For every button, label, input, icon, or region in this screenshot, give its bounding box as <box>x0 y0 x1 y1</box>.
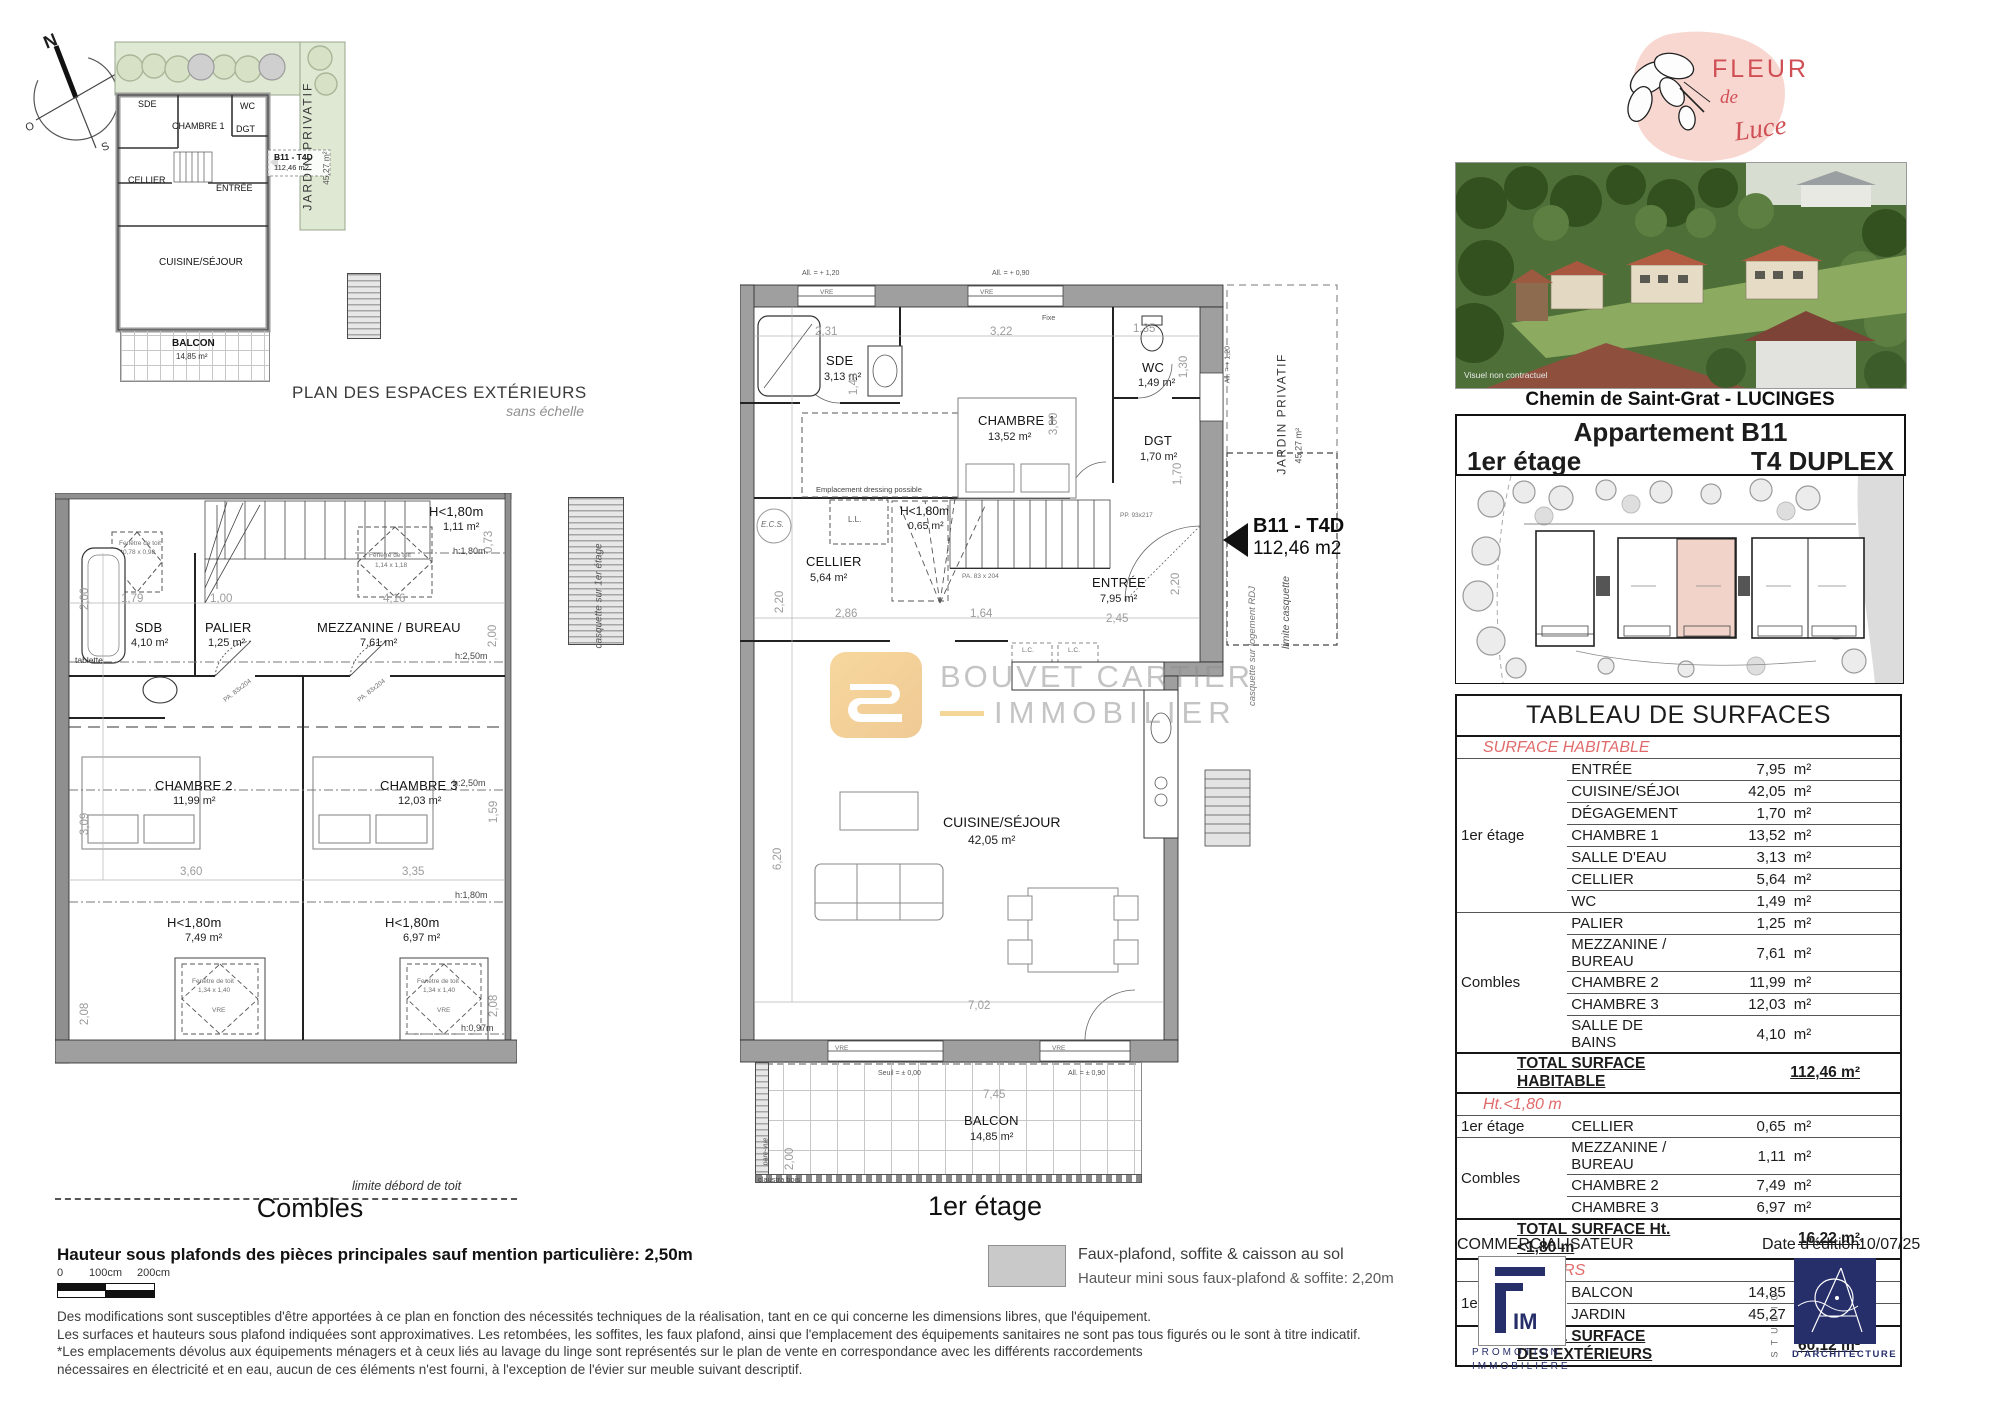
skylight-label: Fenêtre de toit <box>369 553 411 560</box>
combles-chambre2: CHAMBRE 2 <box>155 779 233 793</box>
floor-cell: 1er étage <box>1456 1116 1567 1138</box>
casquette-1er-etage: casquette sur 1er étage <box>568 497 624 645</box>
logo-word-fleur: FLEUR <box>1712 56 1809 82</box>
dim: 2,45 <box>1106 613 1128 625</box>
vre-label: VRE <box>437 1008 450 1015</box>
fixe-window-label: Fixe <box>1042 315 1055 322</box>
seuil-label: Seuil = ± 0,00 <box>878 1070 921 1077</box>
ff-wc: WC <box>1142 361 1164 375</box>
ff-jardin-area: 45,27 m² <box>1295 428 1304 464</box>
dim: 3,00 <box>1048 413 1060 435</box>
mini-exterior-stairs <box>347 273 381 339</box>
combles-chambre2-area: 11,99 m² <box>173 796 216 808</box>
skylight-label: Fenêtre de toit <box>192 979 234 986</box>
ext-jardin-label: JARDIN PRIVATIF <box>301 82 314 211</box>
dim: 2,00 <box>487 625 499 647</box>
logo-word-de: de <box>1720 88 1738 108</box>
ff-cellier: CELLIER <box>806 555 862 569</box>
ff-h180: H<1,80m <box>900 505 949 518</box>
combles-h180-right-area: 6,97 m² <box>403 933 440 945</box>
dim: 2,20 <box>774 591 786 613</box>
commercialisateur-label: COMMERCIALISATEUR <box>1457 1237 1634 1254</box>
table-row: Combles MEZZANINE / BUREAU1,11m² <box>1456 1138 1901 1175</box>
combles-sdb-area: 4,10 m² <box>131 638 168 650</box>
watermark-line1: BOUVET CARTIER <box>940 659 1253 695</box>
table-row: Combles PALIER1,25m² <box>1456 913 1901 935</box>
dim: 1,70 <box>1172 463 1184 485</box>
dim: 2,08 <box>488 995 500 1017</box>
dim: 3,22 <box>990 326 1012 338</box>
balcony-edge <box>755 1174 1142 1183</box>
agency-watermark: BOUVET CARTIER IMMOBILIER <box>828 650 1253 740</box>
scale-bar: 0 100cm 200cm <box>57 1268 167 1298</box>
photo-caption: Visuel non contractuel <box>1464 371 1547 380</box>
project-address: Chemin de Saint-Grat - LUCINGES <box>1455 390 1905 410</box>
combles-h180-left: H<1,80m <box>167 916 222 930</box>
combles-h180-top-area: 1,11 m² <box>443 522 479 534</box>
studio-logo-icon <box>1794 1258 1876 1344</box>
ff-balcon-area: 14,85 m² <box>970 1132 1013 1144</box>
section-surface-habitable: SURFACE HABITABLE <box>1456 736 1901 759</box>
combles-palier-area: 1,25 m² <box>208 638 245 650</box>
studio-caption: D'ARCHITECTURE <box>1792 1350 1897 1360</box>
claustra-label: claustra bois <box>758 1176 800 1184</box>
plan-sheet: { "compass": {"n":"N","e":"E","s":"S","o… <box>0 0 2000 1413</box>
allege-label: All. = + 1,20 <box>802 270 839 277</box>
ll-label: L.L. <box>848 516 861 524</box>
ext-room-cellier: CELLIER <box>128 176 166 185</box>
watermark-line2: IMMOBILIER <box>994 695 1237 731</box>
dim: 2,00 <box>79 588 91 610</box>
skylight-label: Fenêtre de toit <box>417 979 459 986</box>
disclaimer-line: Les surfaces et hauteurs sous plafond in… <box>57 1326 1387 1344</box>
project-photo: Visuel non contractuel <box>1455 162 1907 389</box>
scale-segment <box>105 1290 155 1298</box>
combles-h180-right: H<1,80m <box>385 916 440 930</box>
dim: 1,00 <box>210 593 232 605</box>
table-title: TABLEAU DE SURFACES <box>1456 695 1901 736</box>
ff-chambre1: CHAMBRE 1 <box>978 414 1056 428</box>
dim: 3,09 <box>79 813 91 835</box>
combles-h180-line: h:1,80m <box>453 547 486 556</box>
section-ht180: Ht.<1,80 m <box>1456 1093 1901 1116</box>
unit-floor: 1er étage <box>1467 446 1581 477</box>
legend-line2: Hauteur mini sous faux-plafond & soffite… <box>1078 1271 1394 1287</box>
dim: 7,45 <box>983 1089 1005 1101</box>
ext-jardin-area: 45,27 m² <box>322 151 331 185</box>
ext-room-wc: WC <box>240 102 255 111</box>
combles-h097-line: h:0,97m <box>461 1024 494 1033</box>
dim: 7,02 <box>968 1000 990 1012</box>
ff-chambre1-area: 13,52 m² <box>988 432 1031 444</box>
skylight-size: 0,78 x 0,98 <box>123 550 155 557</box>
combles-h180-top: H<1,80m <box>429 505 484 519</box>
combles-title: Combles <box>160 1194 460 1222</box>
svg-text:IM: IM <box>1513 1309 1537 1334</box>
fleur-de-luce-logo: FLEUR de Luce <box>1592 26 1812 166</box>
ext-balcon-area: 14,85 m² <box>176 353 208 361</box>
edition-date-value: 10/07/25 <box>1858 1237 1920 1254</box>
combles-floor-plan: H<1,80m 1,11 m² 0,73 h:1,80m Fenêtre de … <box>55 493 517 1065</box>
site-plan-drawing <box>1456 476 1903 683</box>
skylight-size: 1,34 x 1,40 <box>198 988 230 995</box>
vre-label: VRE <box>980 290 993 297</box>
limite-casquette-label: limite casquette <box>1281 576 1292 649</box>
balcony-deck <box>755 1062 1142 1182</box>
unit-type: T4 DUPLEX <box>1751 446 1894 477</box>
ff-cuisine: CUISINE/SÉJOUR <box>943 815 1060 830</box>
skylight-size: 1,14 x 1,18 <box>375 563 407 570</box>
ext-room-sde: SDE <box>138 100 157 109</box>
unit-marker-label: B11 - T4D <box>1253 516 1344 537</box>
combles-h250-line: h:2,50m <box>455 652 488 661</box>
fim-caption-2: IMMOBILIÈRE <box>1472 1362 1571 1373</box>
combles-h180-line: h:1,80m <box>455 891 488 900</box>
exterior-spaces-plan: SDE CHAMBRE 1 WC DGT CELLIER ENTRÉE CUIS… <box>112 36 392 391</box>
ff-balcon: BALCON <box>964 1114 1019 1128</box>
legend-line1: Faux-plafond, soffite & caisson au sol <box>1078 1247 1344 1264</box>
disclaimer-line: Des modifications sont susceptibles d'êt… <box>57 1308 1387 1326</box>
scale-200: 200cm <box>137 1268 170 1280</box>
dim: 2,31 <box>815 326 837 338</box>
combles-palier: PALIER <box>205 621 251 635</box>
dim: 2,00 <box>784 1148 796 1170</box>
dim: 4,16 <box>383 593 405 605</box>
combles-mezzanine-area: 7,61 m² <box>360 638 397 650</box>
aerial-photo-illustration <box>1456 163 1906 388</box>
vre-label: VRE <box>820 290 833 297</box>
disclaimer-line: *Les emplacements dévolus aux équipement… <box>57 1343 1387 1361</box>
ext-room-chambre1: CHAMBRE 1 <box>172 122 225 131</box>
combles-chambre3-area: 12,03 m² <box>398 796 441 808</box>
dim: 1,35 <box>1133 323 1155 335</box>
ext-room-entree: ENTRÉE <box>216 184 253 193</box>
combles-h180-left-area: 7,49 m² <box>185 933 222 945</box>
ff-wc-area: 1,49 m² <box>1138 378 1175 390</box>
pare-vue-label: pare-vue <box>763 1138 770 1166</box>
limite-debord-toit-label: limite débord de toit <box>352 1180 461 1193</box>
floor-cell: Combles <box>1456 1138 1567 1220</box>
allege-label: All. = ± 0,90 <box>1068 1070 1105 1077</box>
scale-0: 0 <box>57 1268 63 1280</box>
combles-tablette: tablette <box>75 656 103 665</box>
scale-segment <box>57 1290 107 1298</box>
dim: 1,30 <box>1178 356 1190 378</box>
table-row: 1er étage ENTRÉE7,95m² <box>1456 759 1901 781</box>
ff-sde: SDE <box>826 354 853 368</box>
combles-h250-line: h:2,50m <box>453 779 486 788</box>
exterior-plan-title: PLAN DES ESPACES EXTÉRIEURS <box>292 384 584 402</box>
faux-plafond-legend-swatch <box>988 1245 1066 1287</box>
fim-caption-1: PROMOTION <box>1472 1348 1561 1359</box>
casquette-1er-label: casquette sur 1er étage <box>595 543 606 648</box>
vre-label: VRE <box>1052 1046 1065 1053</box>
ff-dgt: DGT <box>1144 434 1172 448</box>
dim: 2,08 <box>79 1003 91 1025</box>
total-row: TOTAL SURFACE HABITABLE112,46 m² <box>1456 1053 1901 1093</box>
dressing-note: Emplacement dressing possible <box>816 486 922 494</box>
skylight-size: 1,34 x 1,40 <box>423 988 455 995</box>
vre-label: VRE <box>835 1046 848 1053</box>
ff-entree: ENTRÉE <box>1092 576 1146 590</box>
dim: 1,64 <box>970 608 992 620</box>
vre-label: VRE <box>212 1008 225 1015</box>
disclaimer-line: nécessaires en électricité et en eau, au… <box>57 1361 1387 1379</box>
ff-entree-area: 7,95 m² <box>1100 594 1137 606</box>
dim: 1,79 <box>121 593 143 605</box>
ff-jardin-label: JARDIN PRIVATIF <box>1275 353 1288 474</box>
edition-date-label: Date d'édition: <box>1762 1237 1864 1254</box>
disclaimer-text: Des modifications sont susceptibles d'êt… <box>57 1308 1387 1378</box>
skylight-label: Fenêtre de toit <box>119 541 161 548</box>
studio-vertical-label: STUDIO <box>1771 1287 1780 1357</box>
allege-label: All. = + 0,90 <box>992 270 1029 277</box>
dim: 1,43 <box>848 373 860 395</box>
site-plan <box>1455 475 1904 684</box>
dim: 6,20 <box>772 848 784 870</box>
first-floor-title: 1er étage <box>855 1192 1115 1220</box>
exterior-plan-subtitle: sans échelle <box>292 404 584 419</box>
ext-room-balcon: BALCON <box>172 339 215 350</box>
combles-mezzanine: MEZZANINE / BUREAU <box>317 621 461 635</box>
dim: 3,35 <box>402 866 424 878</box>
unit-header-box: Appartement B11 1er étage T4 DUPLEX <box>1455 414 1906 476</box>
unit-marker-area: 112,46 m2 <box>1253 539 1341 559</box>
dim: 1,59 <box>488 801 500 823</box>
combles-sdb: SDB <box>135 621 162 635</box>
ext-room-dgt: DGT <box>236 125 255 134</box>
unit-name: Appartement B11 <box>1457 417 1904 448</box>
watermark-dash <box>940 711 984 716</box>
combles-chambre3: CHAMBRE 3 <box>380 779 458 793</box>
table-row: 1er étage CELLIER0,65m² <box>1456 1116 1901 1138</box>
ecs-label: E.C.S. <box>761 521 784 529</box>
door-size-label: PA. 83 x 204 <box>962 574 999 581</box>
ff-h180-area: 0,65 m² <box>908 521 944 532</box>
fim-logo-icon: IM <box>1479 1257 1565 1345</box>
ff-cellier-area: 5,64 m² <box>810 573 847 585</box>
allege-label: All. = + 1,20 <box>1225 346 1232 383</box>
dim: 3,60 <box>180 866 202 878</box>
ext-room-cuisine: CUISINE/SÉJOUR <box>159 258 243 269</box>
ceiling-height-note: Hauteur sous plafonds des pièces princip… <box>57 1246 693 1264</box>
door-size-label: PP. 93x217 <box>1120 513 1153 520</box>
bouvet-cartier-logo-icon <box>828 650 924 740</box>
ff-cuisine-area: 42,05 m² <box>968 834 1015 847</box>
dim: 2,20 <box>1170 573 1182 595</box>
floor-cell: 1er étage <box>1456 759 1567 913</box>
scale-100: 100cm <box>89 1268 122 1280</box>
floor-cell: Combles <box>1456 913 1567 1054</box>
dim: 2,86 <box>835 608 857 620</box>
